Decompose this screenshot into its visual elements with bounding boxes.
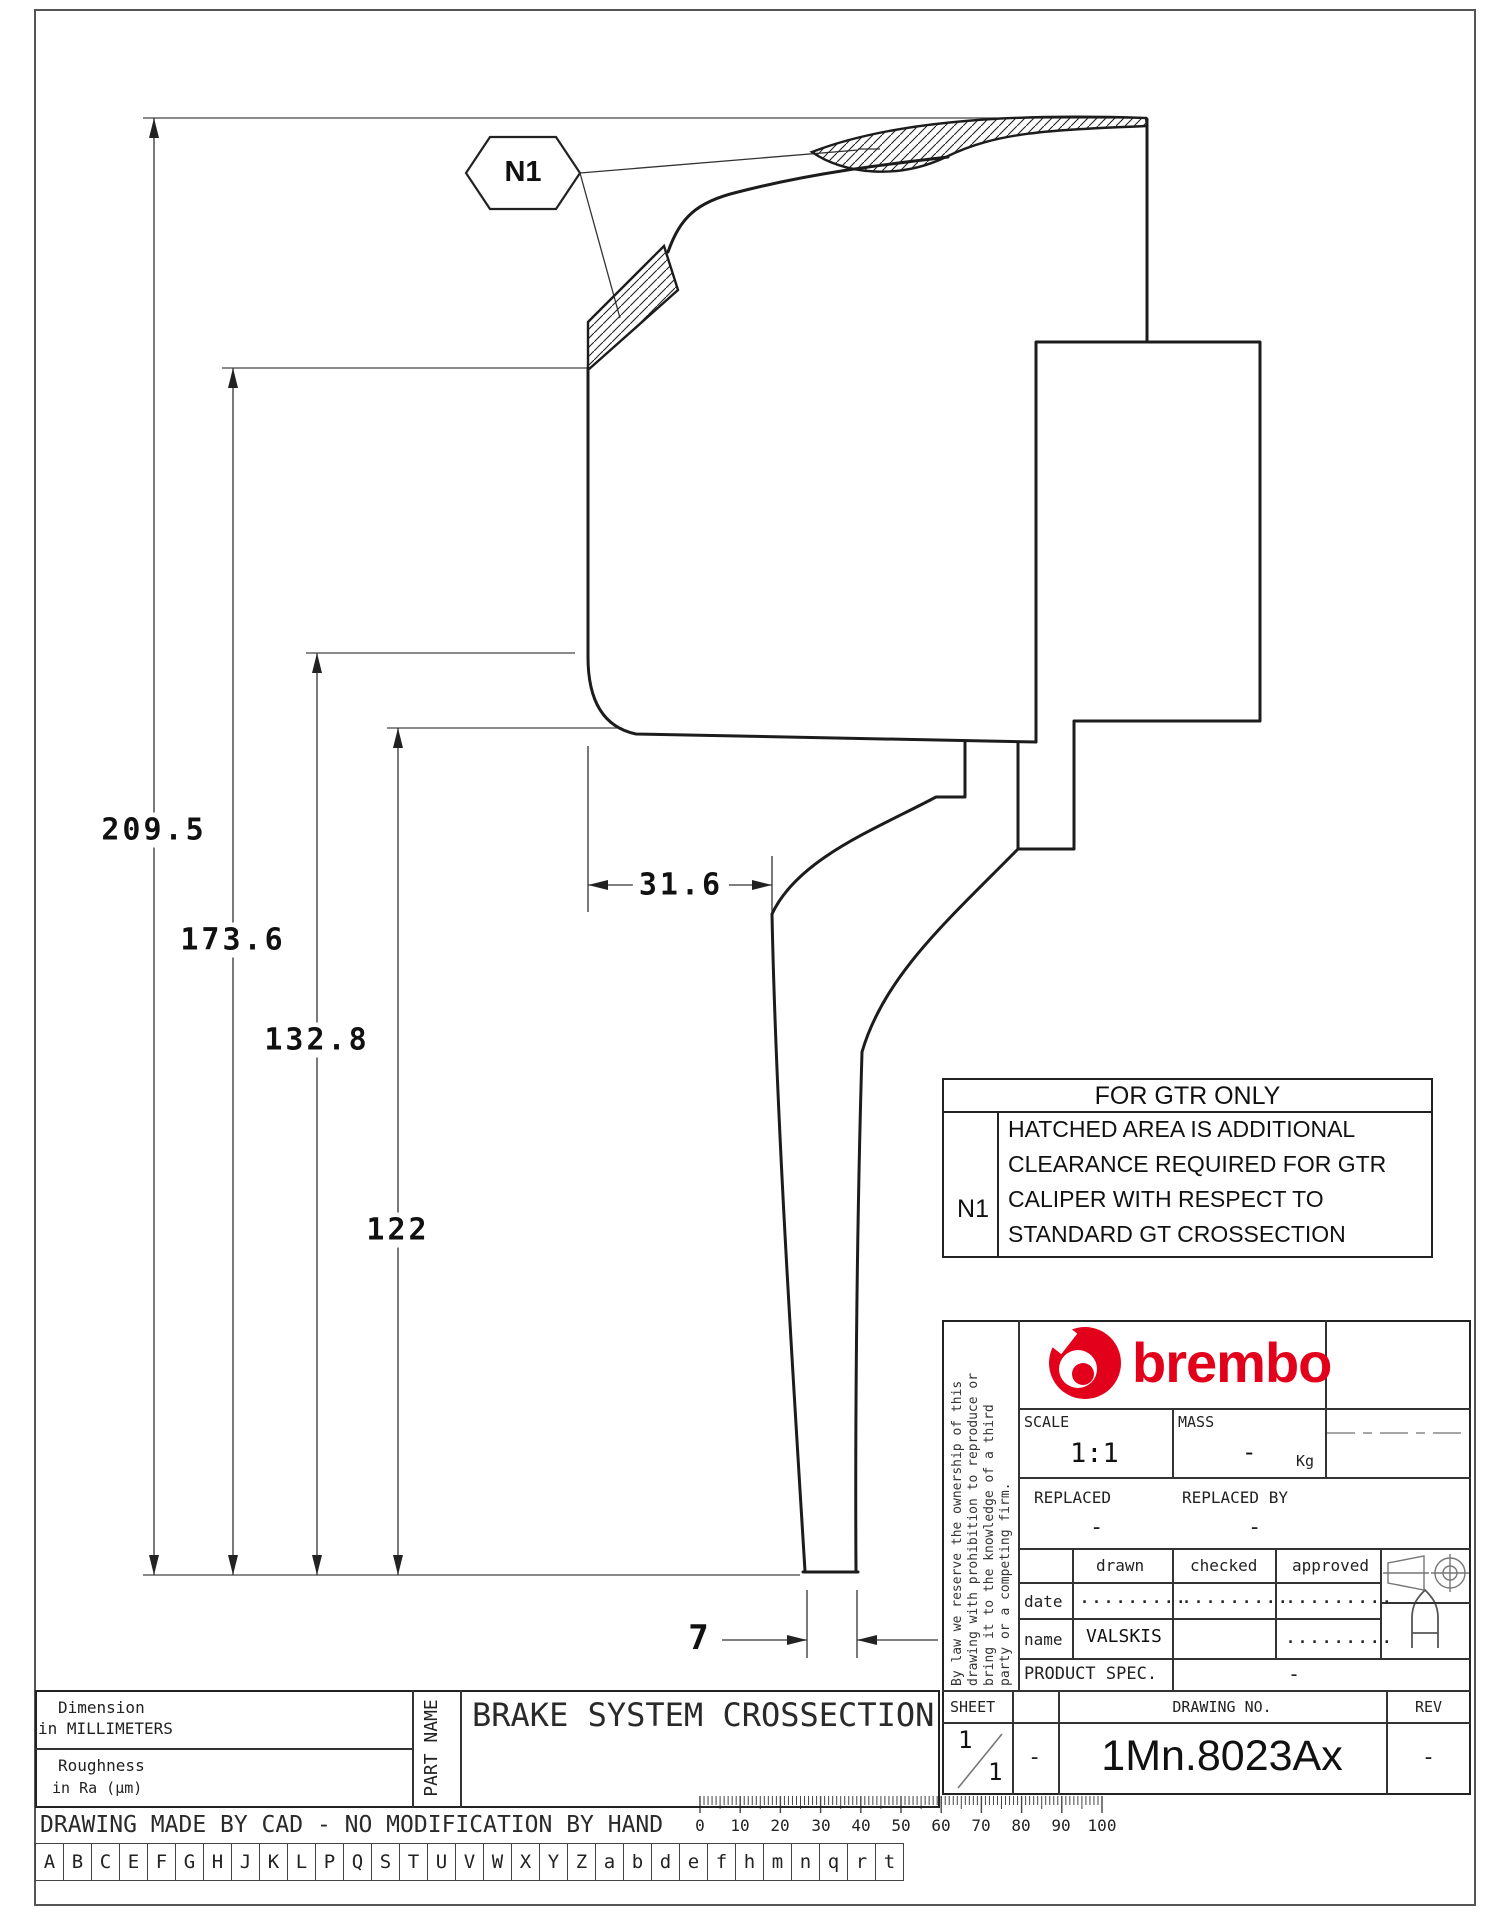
ruler-num-70: 70 [964,1816,998,1835]
letter-cell: t [876,1843,904,1881]
dim-offset-label: 31.6 [633,868,729,903]
checked-header: checked [1190,1556,1257,1575]
ruler-num-20: 20 [763,1816,797,1835]
dim-thickness-label: 7 [682,1618,717,1658]
letter-cell: a [596,1843,624,1881]
drawn-header: drawn [1096,1556,1144,1575]
letter-cell: K [260,1843,288,1881]
mass-unit: Kg [1296,1452,1314,1470]
gtr-note-title: FOR GTR ONLY [944,1080,1431,1113]
sheet-num: 1 [958,1726,972,1754]
approved-header: approved [1292,1556,1369,1575]
letter-cell: A [36,1843,64,1881]
letter-cell: d [652,1843,680,1881]
ruler-num-80: 80 [1004,1816,1038,1835]
dim-outer-label: 173.6 [174,923,291,958]
disclaimer-line-3: bring it to the knowledge of a third [982,1326,997,1686]
units-note-line1: Dimension [58,1698,145,1717]
units-note-line2: in MILLIMETERS [38,1719,173,1738]
ruler-num-10: 10 [723,1816,757,1835]
sheet-total: 1 [988,1758,1002,1786]
ruler-num-90: 90 [1044,1816,1078,1835]
drawing-no-value: 1Mn.8023Ax [1058,1732,1386,1781]
rev-label: REV [1386,1698,1471,1716]
letter-cell: X [512,1843,540,1881]
cad-sheet: 209.5 173.6 132.8 122 31.6 7 N1 FOR GTR … [0,0,1504,1920]
date-checked-dots: ......... [1182,1589,1290,1607]
replaced-by-label: REPLACED BY [1182,1488,1288,1507]
letter-cell: P [316,1843,344,1881]
letter-cell: Q [344,1843,372,1881]
letter-cell: h [736,1843,764,1881]
gtr-note-line-3: CALIPER WITH RESPECT TO [1008,1186,1324,1213]
part-name-title: BRAKE SYSTEM CROSSECTION [472,1696,934,1734]
mass-label: MASS [1178,1413,1214,1431]
letter-cell: m [764,1843,792,1881]
sheet-label: SHEET [950,1698,995,1716]
gtr-note-line-2: CLEARANCE REQUIRED FOR GTR [1008,1151,1386,1178]
ruler-num-100: 100 [1085,1816,1119,1835]
brembo-wordmark: brembo [1132,1330,1331,1395]
letter-cell: F [148,1843,176,1881]
drawing-no-label: DRAWING NO. [1058,1698,1386,1716]
replaced-value: - [1090,1515,1103,1540]
letter-cell: b [624,1843,652,1881]
rev-value: - [1386,1745,1471,1770]
roughness-note-line2: in Ra (μm) [52,1779,142,1797]
product-spec-value: - [1288,1662,1300,1686]
dim-inner-label: 132.8 [258,1023,375,1058]
letter-cell: H [204,1843,232,1881]
dimension-7-arrows [787,1635,877,1645]
gtr-note-ref: N1 [948,1195,998,1224]
letter-cell: Z [568,1843,596,1881]
letter-cell: T [400,1843,428,1881]
letter-cell: B [64,1843,92,1881]
letter-cell: r [848,1843,876,1881]
ruler-num-50: 50 [884,1816,918,1835]
ruler-num-60: 60 [924,1816,958,1835]
letter-cell: E [120,1843,148,1881]
scale-value: 1:1 [1070,1438,1119,1469]
ruler-num-40: 40 [844,1816,878,1835]
date-approved-dots: ......... [1286,1589,1394,1607]
date-label: date [1024,1592,1063,1611]
letter-cell: U [428,1843,456,1881]
sheet-extra: - [1028,1745,1041,1770]
cad-note: DRAWING MADE BY CAD - NO MODIFICATION BY… [40,1812,663,1838]
name-approved-dots: ......... [1286,1629,1394,1647]
dim-overall-label: 209.5 [95,813,212,848]
date-drawn-dots: ......... [1080,1589,1188,1607]
letter-cell: S [372,1843,400,1881]
replaced-label: REPLACED [1034,1488,1111,1507]
gtr-note-line-4: STANDARD GT CROSSECTION [1008,1221,1346,1248]
name-drawn: VALSKIS [1086,1626,1162,1647]
letter-cell: J [232,1843,260,1881]
letters-strip: ABCEFGHJKLPQSTUVWXYZabdefhmnqrt [35,1843,901,1882]
letter-cell: V [456,1843,484,1881]
letter-cell: W [484,1843,512,1881]
name-label: name [1024,1630,1063,1649]
dim-hat-label: 122 [360,1213,435,1248]
letter-cell: f [708,1843,736,1881]
letter-cell: e [680,1843,708,1881]
disclaimer-line-4: party or a competing firm. [998,1326,1013,1686]
letter-cell: q [820,1843,848,1881]
n1-callout-label: N1 [504,156,541,189]
letter-cell: C [92,1843,120,1881]
dimension-7 [722,1590,938,1658]
ruler-num-30: 30 [804,1816,838,1835]
mass-value: - [1242,1438,1256,1466]
roughness-note-line1: Roughness [58,1756,145,1775]
gtr-note-ref-cell [944,1113,999,1256]
gtr-note-line-1: HATCHED AREA IS ADDITIONAL [1008,1116,1355,1143]
product-spec-label: PRODUCT SPEC. [1024,1664,1157,1684]
hatched-clearance-area-left [588,246,678,370]
letter-cell: Y [540,1843,568,1881]
letter-cell: n [792,1843,820,1881]
hatched-clearance-area-top [812,117,1147,172]
letter-cell: G [176,1843,204,1881]
disclaimer-line-1: By law we reserve the ownership of this [950,1326,965,1686]
replaced-by-value: - [1248,1515,1261,1540]
scale-label: SCALE [1024,1413,1069,1431]
part-name-label: PART NAME [421,1692,442,1804]
ruler-num-0: 0 [683,1816,717,1835]
letter-cell: L [288,1843,316,1881]
disclaimer-line-2: drawing with prohibition to reproduce or [966,1326,981,1686]
